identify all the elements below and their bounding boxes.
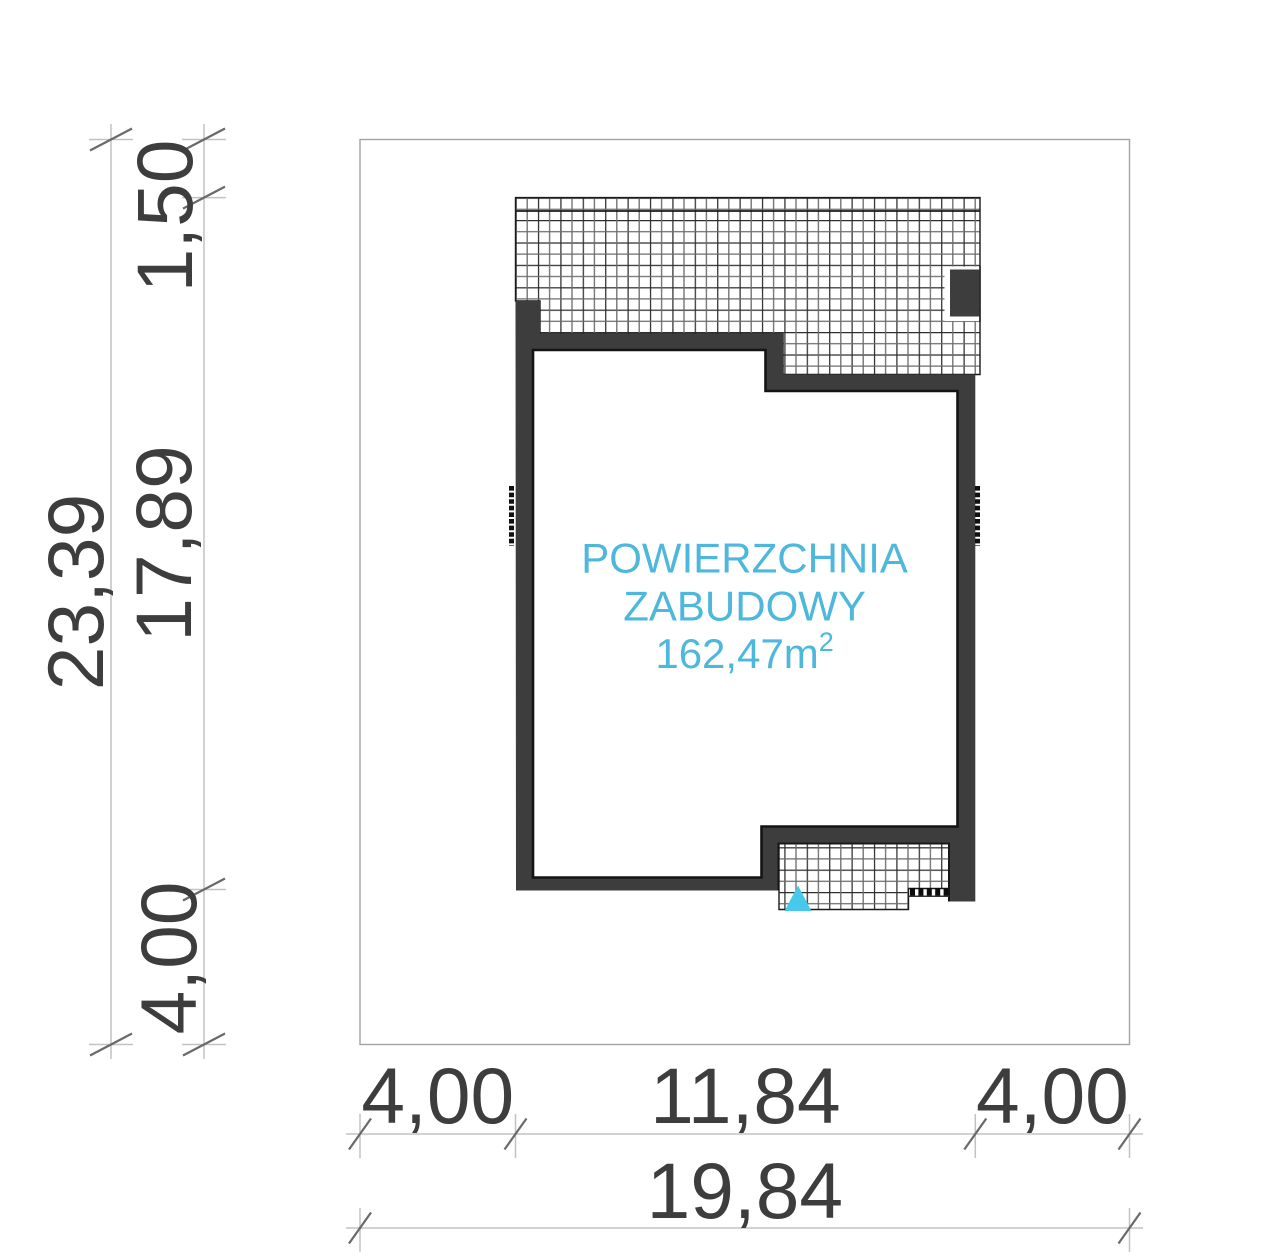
svg-text:4,00: 4,00	[125, 882, 213, 1035]
svg-text:19,84: 19,84	[647, 1147, 843, 1235]
svg-text:162,47m2: 162,47m2	[655, 627, 833, 677]
svg-text:17,89: 17,89	[120, 445, 208, 641]
svg-text:1,50: 1,50	[121, 140, 209, 293]
svg-text:4,00: 4,00	[976, 1052, 1129, 1140]
svg-text:ZABUDOWY: ZABUDOWY	[623, 583, 866, 630]
svg-text:11,84: 11,84	[650, 1052, 841, 1140]
svg-text:4,00: 4,00	[361, 1052, 514, 1140]
svg-text:POWIERZCHNIA: POWIERZCHNIA	[581, 534, 908, 581]
svg-text:23,39: 23,39	[32, 494, 120, 690]
